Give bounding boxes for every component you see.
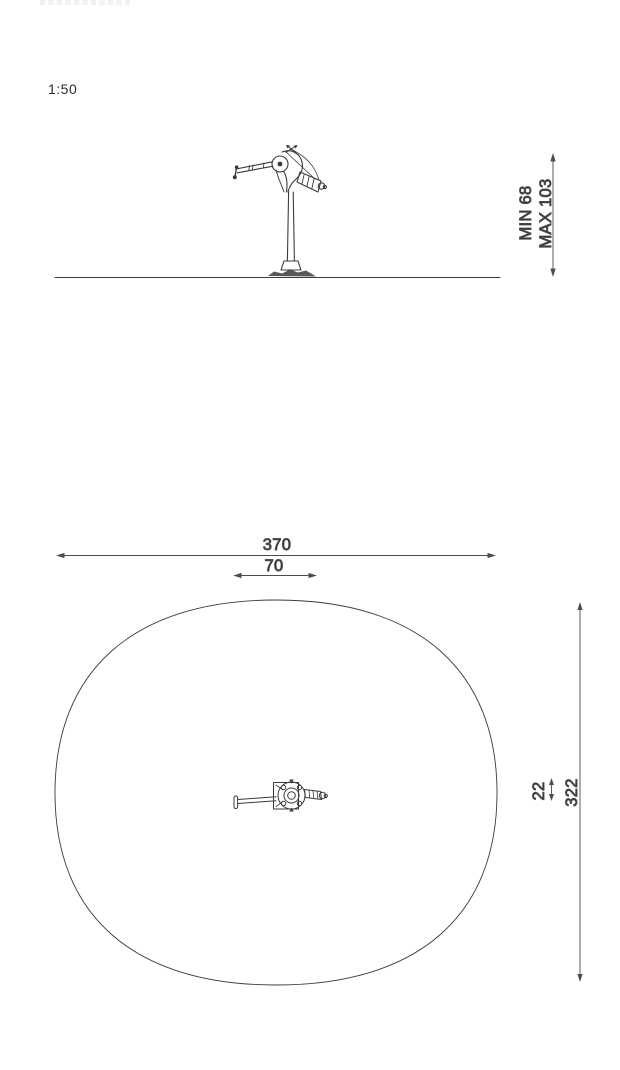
dim-22-label: 22 (530, 782, 548, 801)
elevation-base (268, 261, 316, 277)
plan-safety-area-outline (55, 600, 497, 985)
elevation-view (55, 145, 500, 278)
dim-322-label: 322 (563, 778, 581, 806)
plan-dim-22: 22 (530, 778, 554, 801)
plan-dim-322: 322 (563, 602, 583, 982)
drawing-sheet: 1:50 (0, 0, 620, 1070)
technical-drawing-canvas: MIN 68 MAX 103 (0, 0, 620, 1070)
elevation-seat-assembly (276, 149, 326, 192)
plan-equipment (234, 780, 327, 812)
height-dim-max-label: MAX 103 (537, 179, 555, 249)
dim-70-label: 70 (265, 557, 284, 575)
elevation-hub (272, 156, 288, 172)
plan-dim-70: 70 (233, 557, 317, 578)
plan-dim-370: 370 (56, 536, 496, 558)
plan-view (55, 600, 497, 985)
elevation-arm (237, 162, 273, 173)
height-dim-min-label: MIN 68 (517, 186, 535, 241)
elevation-height-dimension: MIN 68 MAX 103 (517, 153, 556, 277)
dim-370-label: 370 (263, 536, 291, 554)
elevation-pole (287, 192, 294, 261)
